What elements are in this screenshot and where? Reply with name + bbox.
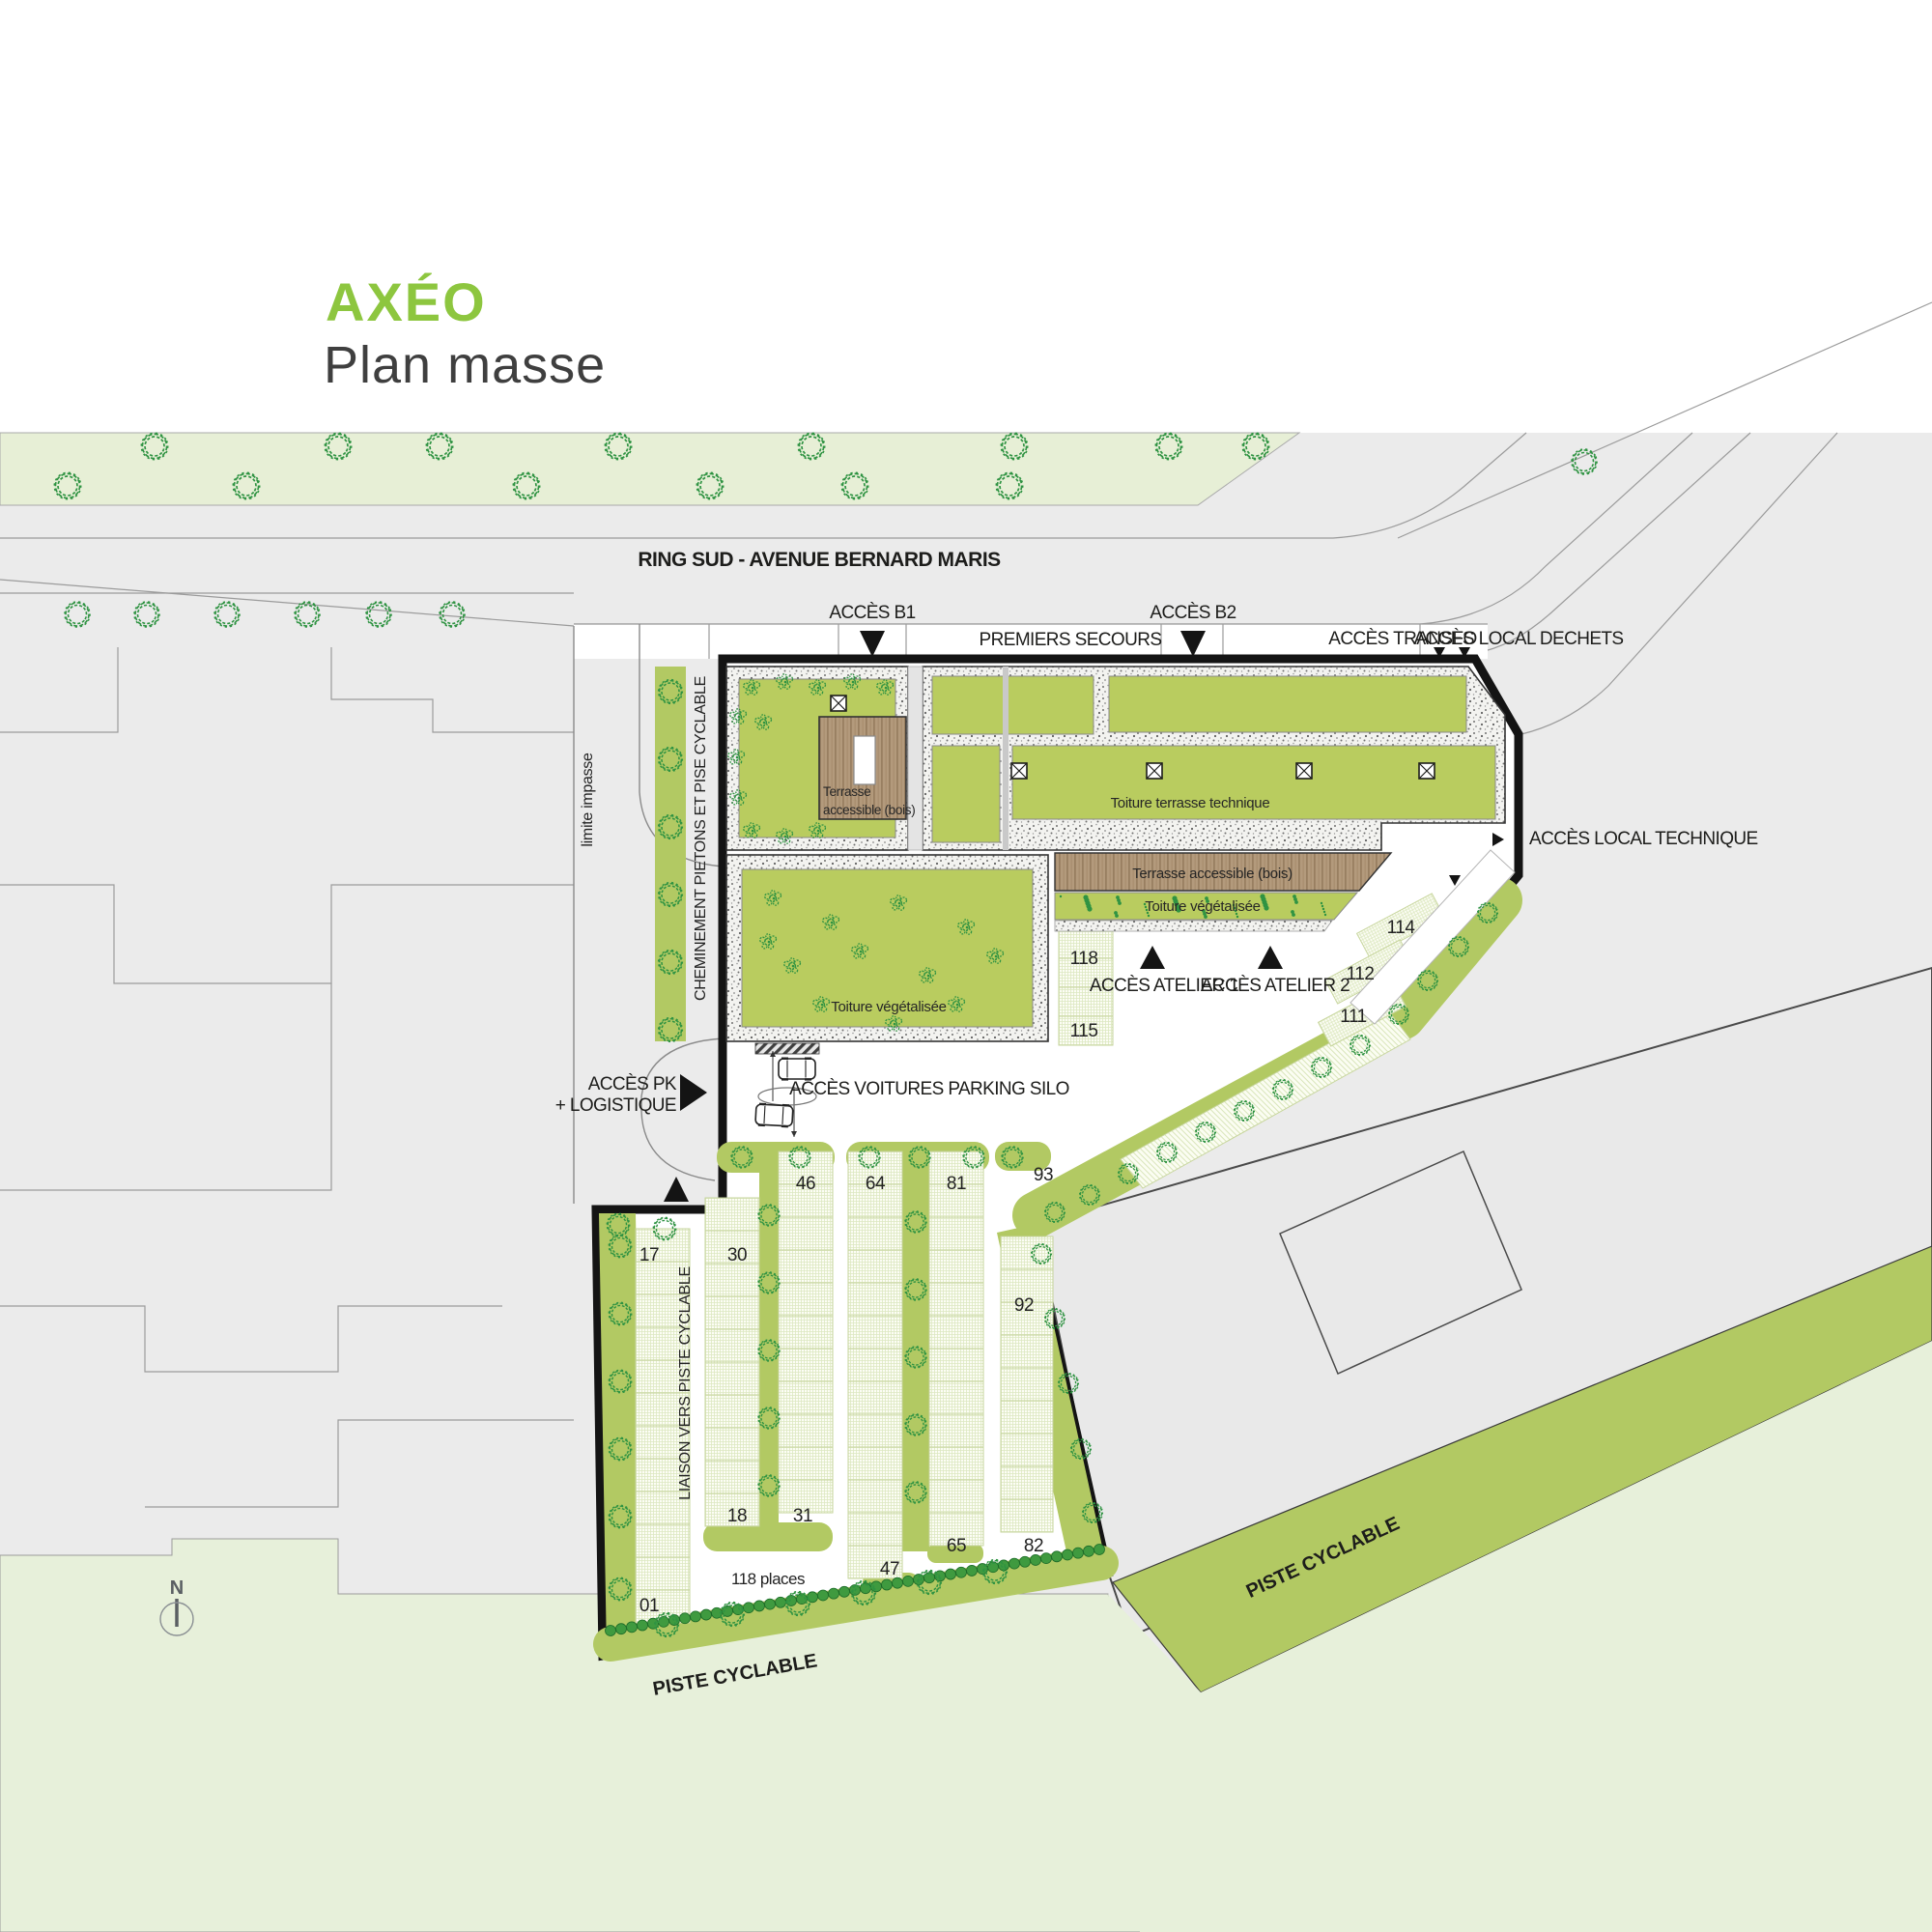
parking-bay (779, 1381, 833, 1414)
access-b2-label: ACCÈS B2 (1150, 603, 1236, 623)
bay-81: 81 (947, 1174, 966, 1194)
hedge-icon (1009, 1558, 1020, 1569)
parking-bay (929, 1381, 983, 1414)
vegetal-dot (1324, 914, 1326, 916)
hedge-icon (882, 1579, 893, 1590)
page-subtitle: Plan masse (324, 336, 606, 394)
parking-bay (929, 1349, 983, 1381)
parking-bay (929, 1447, 983, 1480)
building-b2 (908, 667, 1505, 850)
vegetal-dot (1321, 902, 1322, 904)
total-places-label: 118 places (731, 1570, 805, 1588)
parking-bay (636, 1557, 690, 1590)
vegetal-dot (1321, 905, 1323, 907)
vegetal-dot (1116, 895, 1120, 899)
parking-bay (929, 1414, 983, 1447)
parking-bay (779, 1414, 833, 1447)
vegetal-dot (1322, 908, 1324, 910)
limite-impasse-label: limite impasse (580, 753, 596, 847)
access-technique-label: ACCÈS LOCAL TECHNIQUE (1529, 829, 1758, 849)
hedge-icon (1063, 1549, 1073, 1560)
bay-111: 111 (1340, 1007, 1366, 1027)
access-atelier2-label: ACCÈS ATELIER 2 (1201, 976, 1350, 996)
parking-bay (636, 1524, 690, 1557)
parking-bay (1001, 1499, 1053, 1532)
bay-46: 46 (796, 1174, 815, 1194)
entrance-gate (755, 1043, 819, 1054)
bay-17: 17 (639, 1245, 659, 1265)
bay-93: 93 (1034, 1165, 1053, 1185)
hedge-icon (818, 1590, 829, 1601)
vegetal-dot (1083, 895, 1088, 899)
cheminement-label: CHEMINEMENT PIETONS ET PISE CYCLABLE (693, 676, 709, 1001)
bay-92: 92 (1014, 1295, 1034, 1316)
parking-bay (779, 1250, 833, 1283)
parking-bay (779, 1316, 833, 1349)
vegetal-dot (1148, 915, 1150, 917)
hedge-icon (1020, 1556, 1031, 1567)
hedge-icon (956, 1567, 967, 1577)
hedge-icon (616, 1624, 627, 1634)
vegetal-dot (1114, 911, 1118, 915)
bay-82: 82 (1024, 1536, 1043, 1556)
parking-bay (1001, 1236, 1053, 1269)
vegetal-dot (1260, 894, 1264, 898)
hedge-icon (1073, 1548, 1084, 1558)
parking-bay (779, 1217, 833, 1250)
toiture-technique-label: Toiture terrasse technique (1111, 795, 1270, 811)
page-title: AXÉO (326, 271, 487, 332)
bay-30: 30 (727, 1245, 747, 1265)
hedge-icon (967, 1565, 978, 1576)
vegetal-dot (1291, 910, 1294, 914)
parking-bay (929, 1316, 983, 1349)
terrasse-bois1-label-1: Terrasse (823, 784, 870, 799)
parking-bay (779, 1447, 833, 1480)
bay-18: 18 (727, 1506, 747, 1526)
bay-31: 31 (793, 1506, 812, 1526)
bay-114: 114 (1387, 918, 1416, 938)
parking-bay (929, 1217, 983, 1250)
parking-bay (705, 1362, 759, 1395)
access-pk-label-2: + LOGISTIQUE (555, 1095, 676, 1116)
parking-bay (848, 1513, 902, 1546)
hedge-icon (648, 1618, 659, 1629)
toiture-veg1-label: Toiture végétalisée (1145, 898, 1260, 915)
bay-112: 112 (1347, 964, 1375, 984)
bay-01: 01 (639, 1596, 659, 1616)
parking-bay (929, 1250, 983, 1283)
hedge-icon (999, 1560, 1009, 1571)
parking-bay (705, 1296, 759, 1329)
hedge-icon (946, 1569, 956, 1579)
parking-bay (1001, 1466, 1053, 1499)
parking-bay (848, 1480, 902, 1513)
site-plan-page: N AXÉO Plan masse RING SUD - AVENUE BERN… (0, 0, 1932, 1932)
bay-47: 47 (880, 1559, 899, 1579)
access-b1-label: ACCÈS B1 (829, 603, 915, 623)
hedge-icon (1084, 1546, 1094, 1556)
toiture-veg2-label: Toiture végétalisée (831, 999, 946, 1015)
car-icon (755, 1103, 793, 1128)
hedge-icon (701, 1609, 712, 1620)
hedge-icon (829, 1588, 839, 1599)
parking-bay (929, 1480, 983, 1513)
hedge-icon (1094, 1545, 1105, 1555)
vegetal-dot (1323, 911, 1325, 913)
parking-bay (848, 1250, 902, 1283)
parking-bay (1001, 1368, 1053, 1401)
parking-bay (848, 1349, 902, 1381)
vegetal-dot (1236, 916, 1238, 918)
parking-bay (705, 1198, 759, 1231)
parking-bay (705, 1329, 759, 1362)
parking-bay (705, 1264, 759, 1296)
hedge-icon (871, 1581, 882, 1592)
parking-bay (705, 1395, 759, 1428)
parking-bay (848, 1414, 902, 1447)
hedge-icon (680, 1613, 691, 1624)
hedge-icon (744, 1603, 754, 1613)
liaison-label: LIAISON VERS PISTE CYCLABLE (677, 1266, 694, 1500)
parking-bay (1001, 1401, 1053, 1434)
hedge-icon (691, 1611, 701, 1622)
car-icon (779, 1058, 815, 1081)
parking-bay (1001, 1335, 1053, 1368)
access-dechets-label: ACCÈS LOCAL DECHETS (1413, 629, 1623, 649)
parking-bay (848, 1381, 902, 1414)
hedge-icon (754, 1601, 765, 1611)
hedge-icon (638, 1620, 648, 1631)
hedge-icon (903, 1576, 914, 1586)
vegetal-dot (1060, 895, 1062, 897)
parking-bay (779, 1283, 833, 1316)
parking-bay (929, 1283, 983, 1316)
access-silo-label: ACCÈS VOITURES PARKING SILO (789, 1079, 1069, 1099)
parking-bay (848, 1316, 902, 1349)
site-plan-drawing: N AXÉO Plan masse RING SUD - AVENUE BERN… (0, 0, 1932, 1932)
hedge-icon (606, 1626, 616, 1636)
terrasse-bois2-label: Terrasse accessible (bois) (1132, 866, 1293, 882)
parking-bay (848, 1447, 902, 1480)
hedge-icon (1031, 1554, 1041, 1565)
bay-65: 65 (947, 1536, 966, 1556)
access-pk-label-1: ACCÈS PK (588, 1074, 677, 1094)
hedge-icon (765, 1599, 776, 1609)
parking-bay (1001, 1434, 1053, 1466)
parking-bay (705, 1428, 759, 1461)
bay-118: 118 (1070, 949, 1098, 969)
parking-bay (848, 1217, 902, 1250)
parking-bay (848, 1283, 902, 1316)
hedge-icon (627, 1622, 638, 1633)
vegetal-dot (1293, 895, 1296, 898)
hedge-icon (839, 1586, 850, 1597)
hedge-icon (776, 1597, 786, 1607)
premiers-secours-label: PREMIERS SECOURS (980, 630, 1162, 650)
parking-bay (705, 1461, 759, 1493)
hedge-icon (1052, 1551, 1063, 1562)
bay-115: 115 (1070, 1021, 1098, 1041)
parking-bay (779, 1349, 833, 1381)
terrasse-bois1-label-2: accessible (bois) (823, 803, 915, 817)
north-letter: N (170, 1577, 184, 1599)
bay-64: 64 (866, 1174, 886, 1194)
road-name-label: RING SUD - AVENUE BERNARD MARIS (638, 549, 1001, 571)
